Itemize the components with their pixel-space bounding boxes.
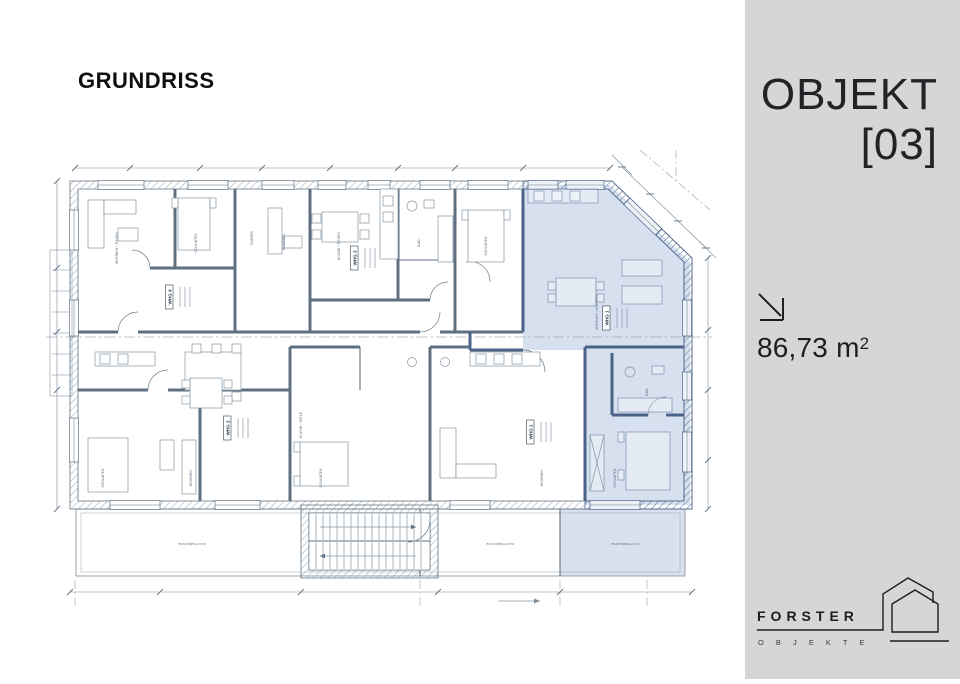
brand-name: FORSTER	[757, 608, 859, 624]
svg-text:WOHNEN / KOCHEN: WOHNEN / KOCHEN	[595, 294, 599, 329]
svg-text:DACHTERRASSE: DACHTERRASSE	[486, 542, 514, 546]
unit-label: WHG 2	[224, 416, 249, 440]
floor-plan-container: WOHNEN / ESSENSCHLAFENZIMMERWOHNENKÜCHE …	[0, 0, 745, 679]
svg-text:DACHTERRASSE: DACHTERRASSE	[178, 542, 206, 546]
object-title: OBJEKT [03]	[761, 70, 938, 169]
svg-text:SCHLAFEN: SCHLAFEN	[194, 233, 198, 253]
svg-text:SCHLAFEN: SCHLAFEN	[319, 468, 323, 488]
area-unit-sup: 2	[860, 334, 870, 353]
svg-text:SCHLAFEN: SCHLAFEN	[613, 468, 617, 488]
sidebar: OBJEKT [03] 86,73 m2 FORSTER	[745, 0, 960, 679]
unit-label: WHG 4	[166, 285, 191, 309]
object-title-line1: OBJEKT	[761, 70, 938, 120]
area-text: 86,73 m2	[757, 332, 947, 364]
brand-sub: O B J E K T E	[758, 638, 869, 647]
arrow-down-right-icon	[757, 290, 791, 326]
svg-text:WHG 1: WHG 1	[529, 424, 534, 440]
area-value: 86,73	[757, 332, 828, 363]
svg-text:WOHNEN: WOHNEN	[540, 469, 544, 486]
svg-text:WOHNEN: WOHNEN	[282, 233, 286, 250]
object-title-line2: [03]	[761, 120, 938, 170]
brand-logo: FORSTER O B J E K T E	[757, 568, 949, 658]
svg-text:SCHLAFEN: SCHLAFEN	[484, 236, 488, 256]
floor-plan-drawing: WOHNEN / ESSENSCHLAFENZIMMERWOHNENKÜCHE …	[0, 0, 745, 679]
unit-label: WHG 3	[351, 246, 376, 270]
svg-text:WHG 1: WHG 1	[605, 310, 610, 326]
svg-text:BAD: BAD	[645, 388, 649, 396]
svg-text:DACHTERRASSE: DACHTERRASSE	[611, 542, 639, 546]
expose-page: { "page": { "title": "GRUNDRISS", "backg…	[0, 0, 960, 679]
svg-text:KÜCHE / DIELE: KÜCHE / DIELE	[299, 411, 303, 438]
svg-text:SCHLAFEN: SCHLAFEN	[101, 468, 105, 488]
svg-text:WOHNEN: WOHNEN	[189, 469, 193, 486]
svg-text:ZIMMER: ZIMMER	[250, 230, 254, 245]
unit-label: WHG 1	[527, 420, 552, 444]
svg-text:WHG 2: WHG 2	[226, 420, 231, 436]
svg-text:KÜCHE / ESSEN: KÜCHE / ESSEN	[337, 232, 341, 260]
svg-text:WOHNEN / ESSEN: WOHNEN / ESSEN	[115, 232, 119, 264]
area-unit: m	[836, 332, 860, 363]
svg-text:WHG 3: WHG 3	[353, 250, 358, 266]
svg-text:BAD: BAD	[417, 239, 421, 247]
svg-text:WHG 4: WHG 4	[168, 289, 173, 305]
area-block: 86,73 m2	[757, 290, 947, 364]
